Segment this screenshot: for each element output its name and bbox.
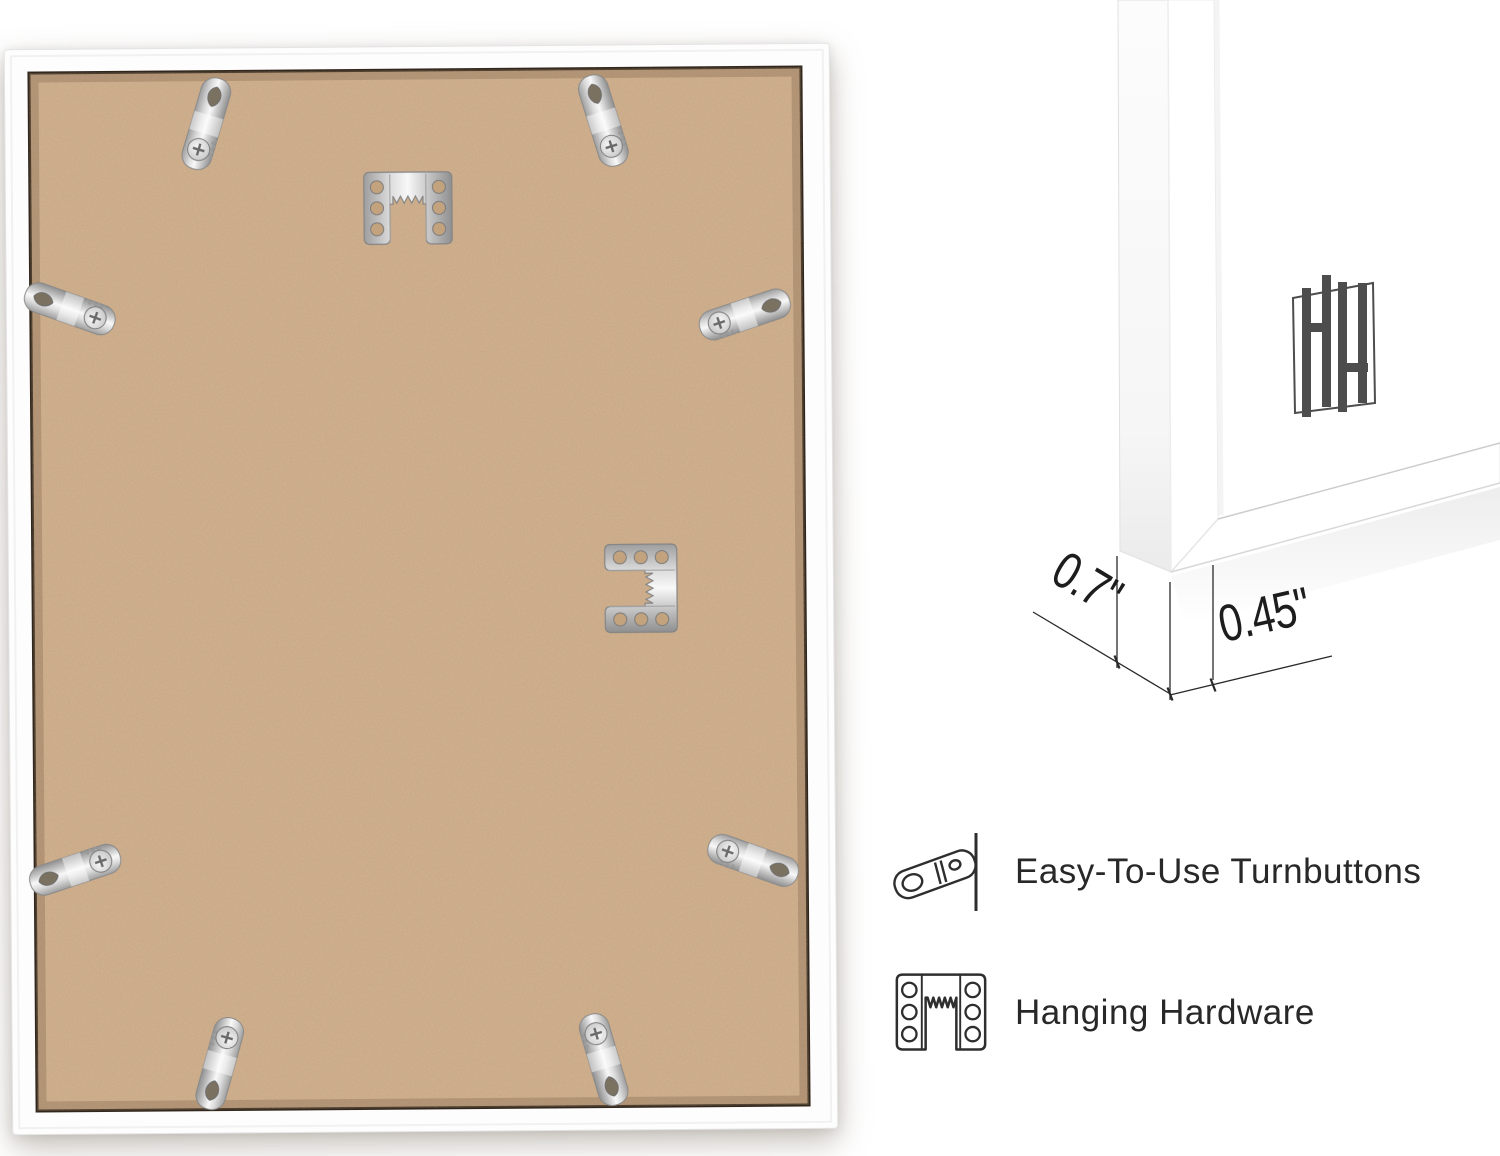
frame-back (4, 43, 839, 1135)
product-infographic: 0.7" 0.45" Easy-To-Use Turnbuttons (0, 0, 1500, 1156)
frame-closeup: 0.7" 0.45" (1020, 0, 1500, 730)
mdf-board (29, 67, 809, 1111)
feature-label: Hanging Hardware (1015, 993, 1315, 1033)
mat (1214, 0, 1500, 519)
frame-front-face (1168, 0, 1218, 572)
product-photo (4, 43, 839, 1135)
turnbutton-icon (890, 831, 985, 913)
feature-row: Hanging Hardware (893, 970, 1315, 1056)
feature-label: Easy-To-Use Turnbuttons (1015, 852, 1421, 892)
depth-dimension-label: 0.7" (1043, 539, 1133, 625)
hanging-hardware-icon (893, 970, 989, 1056)
feature-row: Easy-To-Use Turnbuttons (890, 831, 1421, 913)
frame-side-face (1118, 0, 1171, 572)
